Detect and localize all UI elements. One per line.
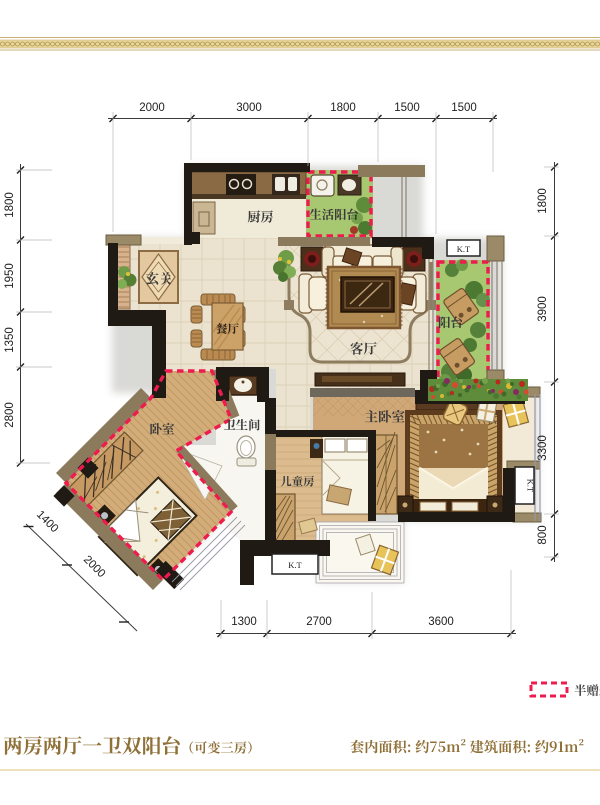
- svg-text:800: 800: [537, 525, 549, 544]
- svg-text:3000: 3000: [236, 102, 262, 114]
- svg-text:K.T: K.T: [457, 244, 471, 254]
- svg-text:1500: 1500: [394, 102, 420, 114]
- svg-text:1300: 1300: [231, 616, 257, 628]
- svg-text:3900: 3900: [537, 296, 549, 322]
- svg-text:2800: 2800: [4, 402, 16, 428]
- svg-text:1500: 1500: [451, 102, 477, 114]
- svg-text:1800: 1800: [4, 192, 16, 218]
- svg-text:1350: 1350: [4, 327, 16, 353]
- svg-text:1800: 1800: [330, 102, 356, 114]
- svg-text:3600: 3600: [428, 616, 454, 628]
- svg-text:K.T: K.T: [288, 560, 302, 570]
- svg-text:1800: 1800: [537, 188, 549, 214]
- svg-text:K.T: K.T: [526, 479, 536, 493]
- svg-text:3300: 3300: [537, 435, 549, 461]
- svg-text:1950: 1950: [4, 263, 16, 289]
- svg-text:2700: 2700: [306, 616, 332, 628]
- svg-text:2000: 2000: [139, 102, 165, 114]
